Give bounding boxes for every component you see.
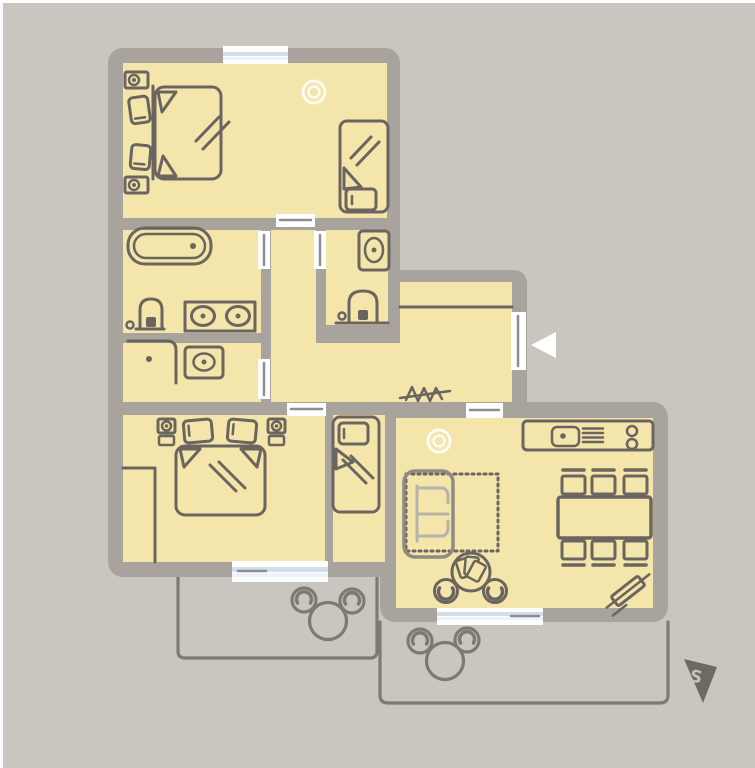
floor-plan-canvas: S xyxy=(0,0,755,768)
entrance-door xyxy=(511,312,526,370)
pillow-icon xyxy=(227,419,257,443)
corridor-floor xyxy=(271,230,316,402)
pillow-icon xyxy=(128,96,150,124)
living-room-window xyxy=(437,608,543,625)
shower-room-door xyxy=(258,359,270,399)
bedroom-1-window xyxy=(223,46,288,64)
bedroom-2-door xyxy=(287,403,326,416)
hall-connector-floor xyxy=(316,343,400,402)
pillow-icon xyxy=(130,144,151,170)
pillow-icon xyxy=(183,419,213,443)
wc-door xyxy=(314,231,326,269)
living-room-door xyxy=(466,403,503,418)
wc-floor xyxy=(326,230,388,325)
shower-room-floor xyxy=(123,343,261,402)
hall-floor xyxy=(400,282,512,402)
bedroom-2-floor xyxy=(123,415,325,562)
bedroom-1-door xyxy=(276,214,315,227)
floor-plan-svg: S xyxy=(0,0,755,768)
pillow-icon xyxy=(346,189,376,210)
bathroom-door xyxy=(258,231,270,269)
bedroom-2-window xyxy=(232,561,328,582)
